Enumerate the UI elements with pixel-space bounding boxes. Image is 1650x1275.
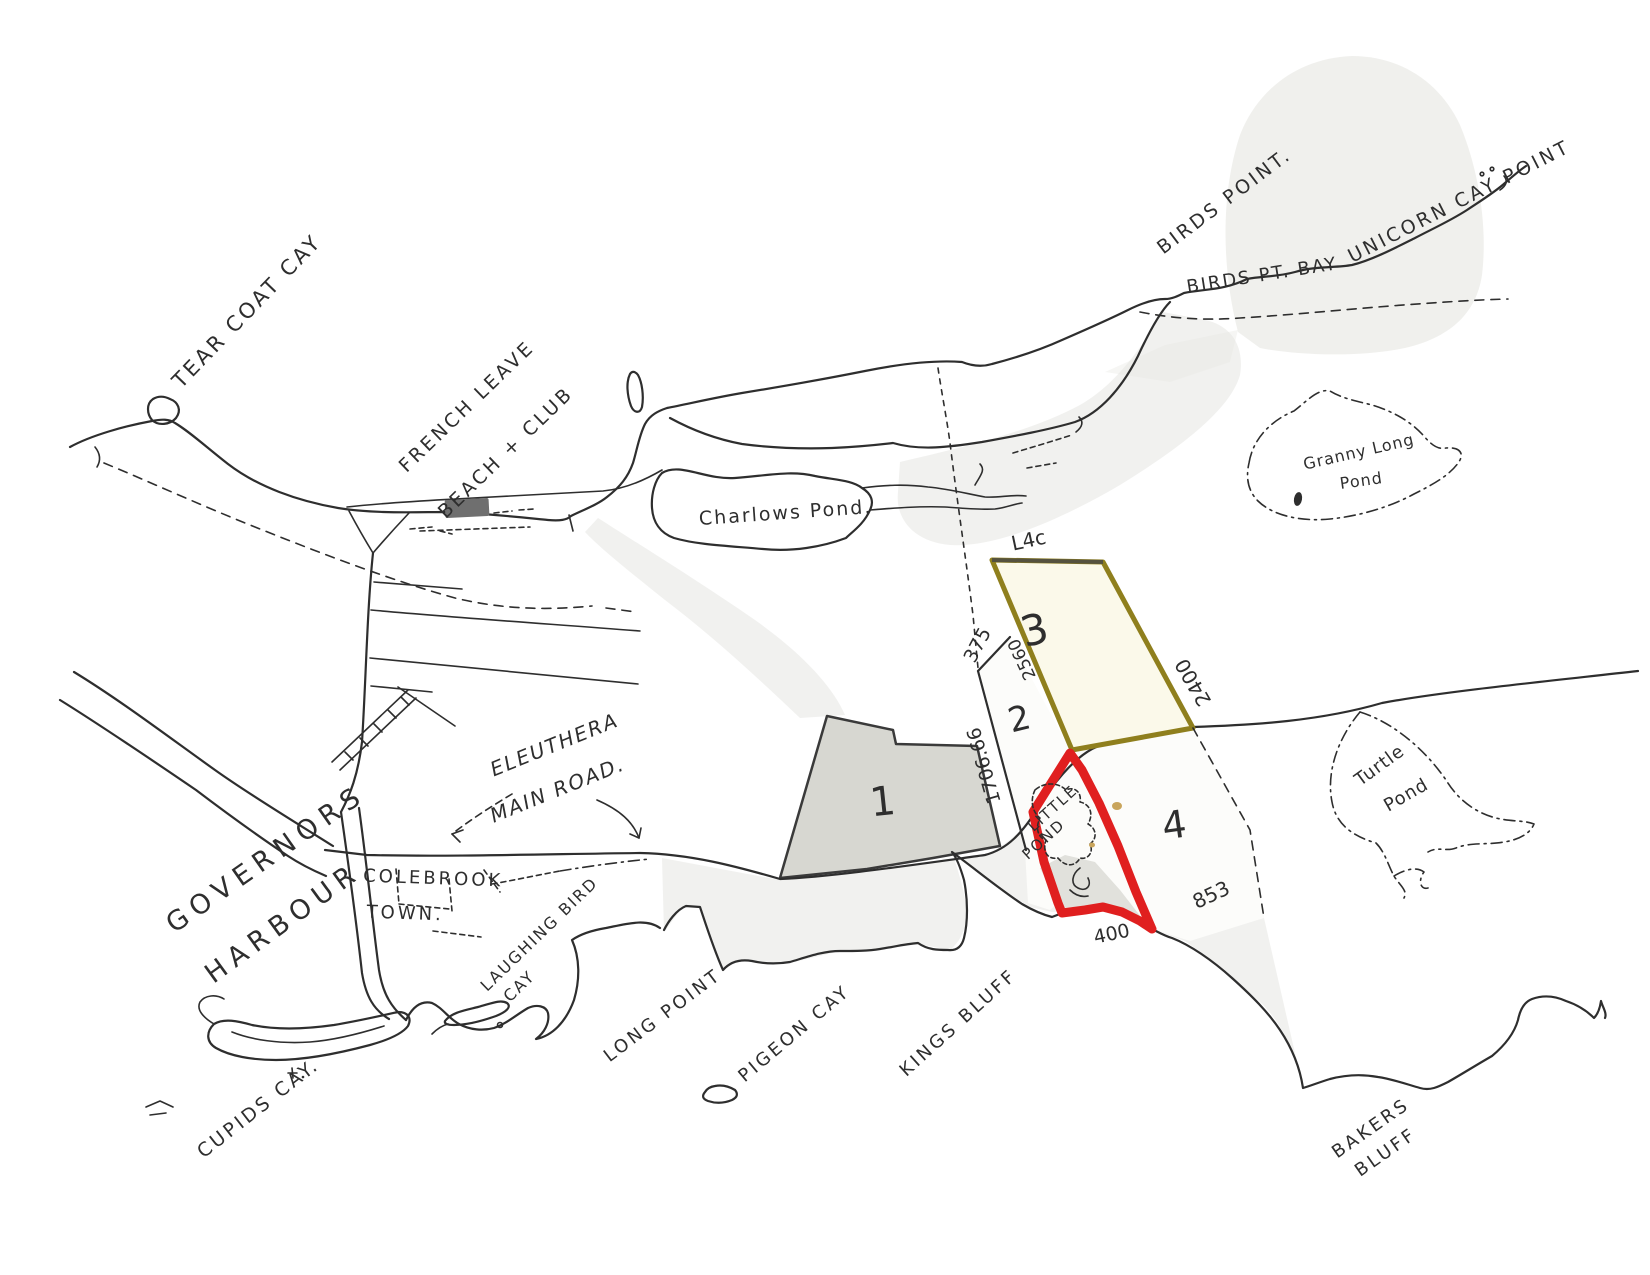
strip-dashes [420,527,530,531]
parcel-1-number: 1 [868,778,898,826]
measurement-400: 400 [1092,920,1132,949]
label-tear-coat-cay: TEAR COAT CAY [167,229,327,393]
junction-branch-right [373,513,409,553]
reef-dashed-line [104,463,592,608]
town-boundary-dashdot [560,859,650,871]
cupids-cay-outline [208,1012,409,1060]
french-leave-strip-shore [347,470,662,507]
pond-tan-dot-2 [1089,843,1095,848]
small-islet [627,372,642,412]
cupids-cay-tip [199,996,224,1024]
ladder-rungs [345,697,409,760]
label-granny-long: Granny Long [1301,430,1416,474]
turtle-pond-squiggle [1394,869,1428,888]
label-charlows-pond: Charlows Pond. [698,496,873,530]
granny-pond-islet [1293,491,1303,506]
laughing-bird-cay-tail [432,1024,448,1034]
label-colebrook: COLEBROOK [363,866,504,892]
road-arrow-left-head [452,830,463,842]
junction-branch-left [349,511,373,553]
map-canvas: TEAR COAT CAY FRENCH LEAVE BEACH + CLUB … [0,0,1650,1275]
field-line-2 [371,610,640,631]
road-arrow-right [597,800,639,838]
label-town: TOWN. [365,902,444,926]
pigeon-cay-island [703,1086,737,1103]
label-long-point: LONG POINT [600,965,726,1067]
vertical-road [341,553,373,812]
pond-tan-dot-1 [1112,802,1122,810]
reef-dash-end [606,608,636,612]
town-street-4 [433,931,481,937]
left-edge-mark [146,1101,173,1115]
nw-arc [95,447,100,467]
field-line-1 [374,582,462,589]
harbour-area [60,511,660,1115]
label-granny-pond: Pond [1339,468,1384,493]
scanned-survey-map: TEAR COAT CAY FRENCH LEAVE BEACH + CLUB … [0,0,1650,1275]
coast-end-dot-1 [1480,172,1484,176]
wash-bank-band [898,312,1241,545]
label-pigeon-cay: PIGEON CAY [734,981,854,1087]
ladder-road-a [332,690,408,762]
label-turtle-pond: Pond [1380,774,1432,816]
field-line-3 [370,658,638,684]
label-turtle: Turtle [1350,741,1409,792]
parcel-3-top-edge [992,560,1103,562]
label-cupids-cay: CUPIDS CAY. [193,1054,324,1163]
turtle-pond-outline-right [1360,712,1534,852]
coast-end-dot-2 [1490,167,1494,171]
label-kings-bluff: KINGS BLUFF [896,965,1022,1081]
